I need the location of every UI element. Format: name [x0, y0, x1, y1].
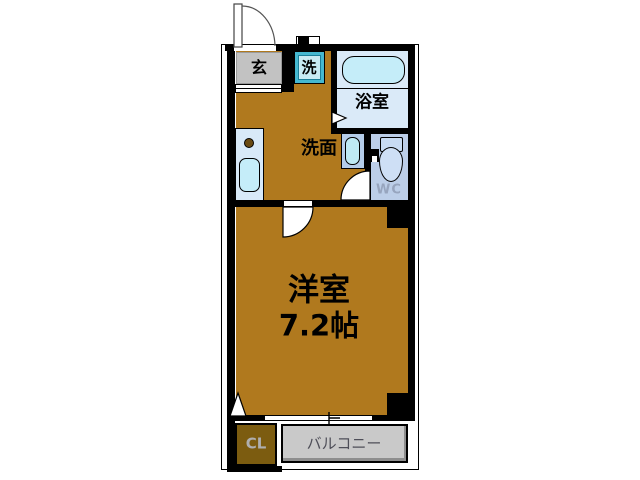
entrance-step-line	[236, 88, 281, 89]
pillar-bottom-right	[387, 393, 415, 421]
flush-handle-inner	[372, 156, 377, 162]
vent-box-dark	[298, 37, 309, 44]
bathroom-divider-line	[337, 88, 408, 89]
wc-label: WC	[376, 184, 402, 197]
wall-left	[227, 44, 235, 472]
laundry-label: 洗	[301, 61, 316, 76]
living-room-name: 洋室	[288, 276, 350, 307]
kitchen-sink-icon	[239, 158, 260, 192]
burner-icon	[244, 138, 254, 148]
wall-wc-left	[365, 134, 371, 200]
living-doorway	[283, 200, 313, 207]
entrance-step	[235, 84, 282, 93]
wall-footer-left	[227, 466, 282, 472]
living-room-size: 7.2帖	[279, 312, 359, 341]
floor-plan: 玄 洗 浴室 洗面 WC 洋室 7.2帖 CL バルコニー	[0, 0, 640, 480]
entrance-doorway	[234, 45, 276, 51]
wall-bath-left	[331, 51, 337, 128]
balcony-label: バルコニー	[307, 437, 382, 452]
bathtub-icon	[342, 56, 405, 84]
closet-label: CL	[246, 437, 267, 452]
entrance-door-arc-icon	[242, 6, 275, 46]
balcony-window	[265, 415, 372, 421]
wall-right	[408, 45, 415, 421]
entrance-door-leaf-icon	[234, 4, 242, 47]
entrance-label: 玄	[251, 60, 267, 76]
washroom-label: 洗面	[301, 140, 337, 158]
wall-entrance-divider	[282, 45, 294, 92]
pillar-top-right	[387, 200, 415, 228]
washbasin-icon	[345, 137, 360, 165]
bathroom-label: 浴室	[355, 95, 389, 112]
